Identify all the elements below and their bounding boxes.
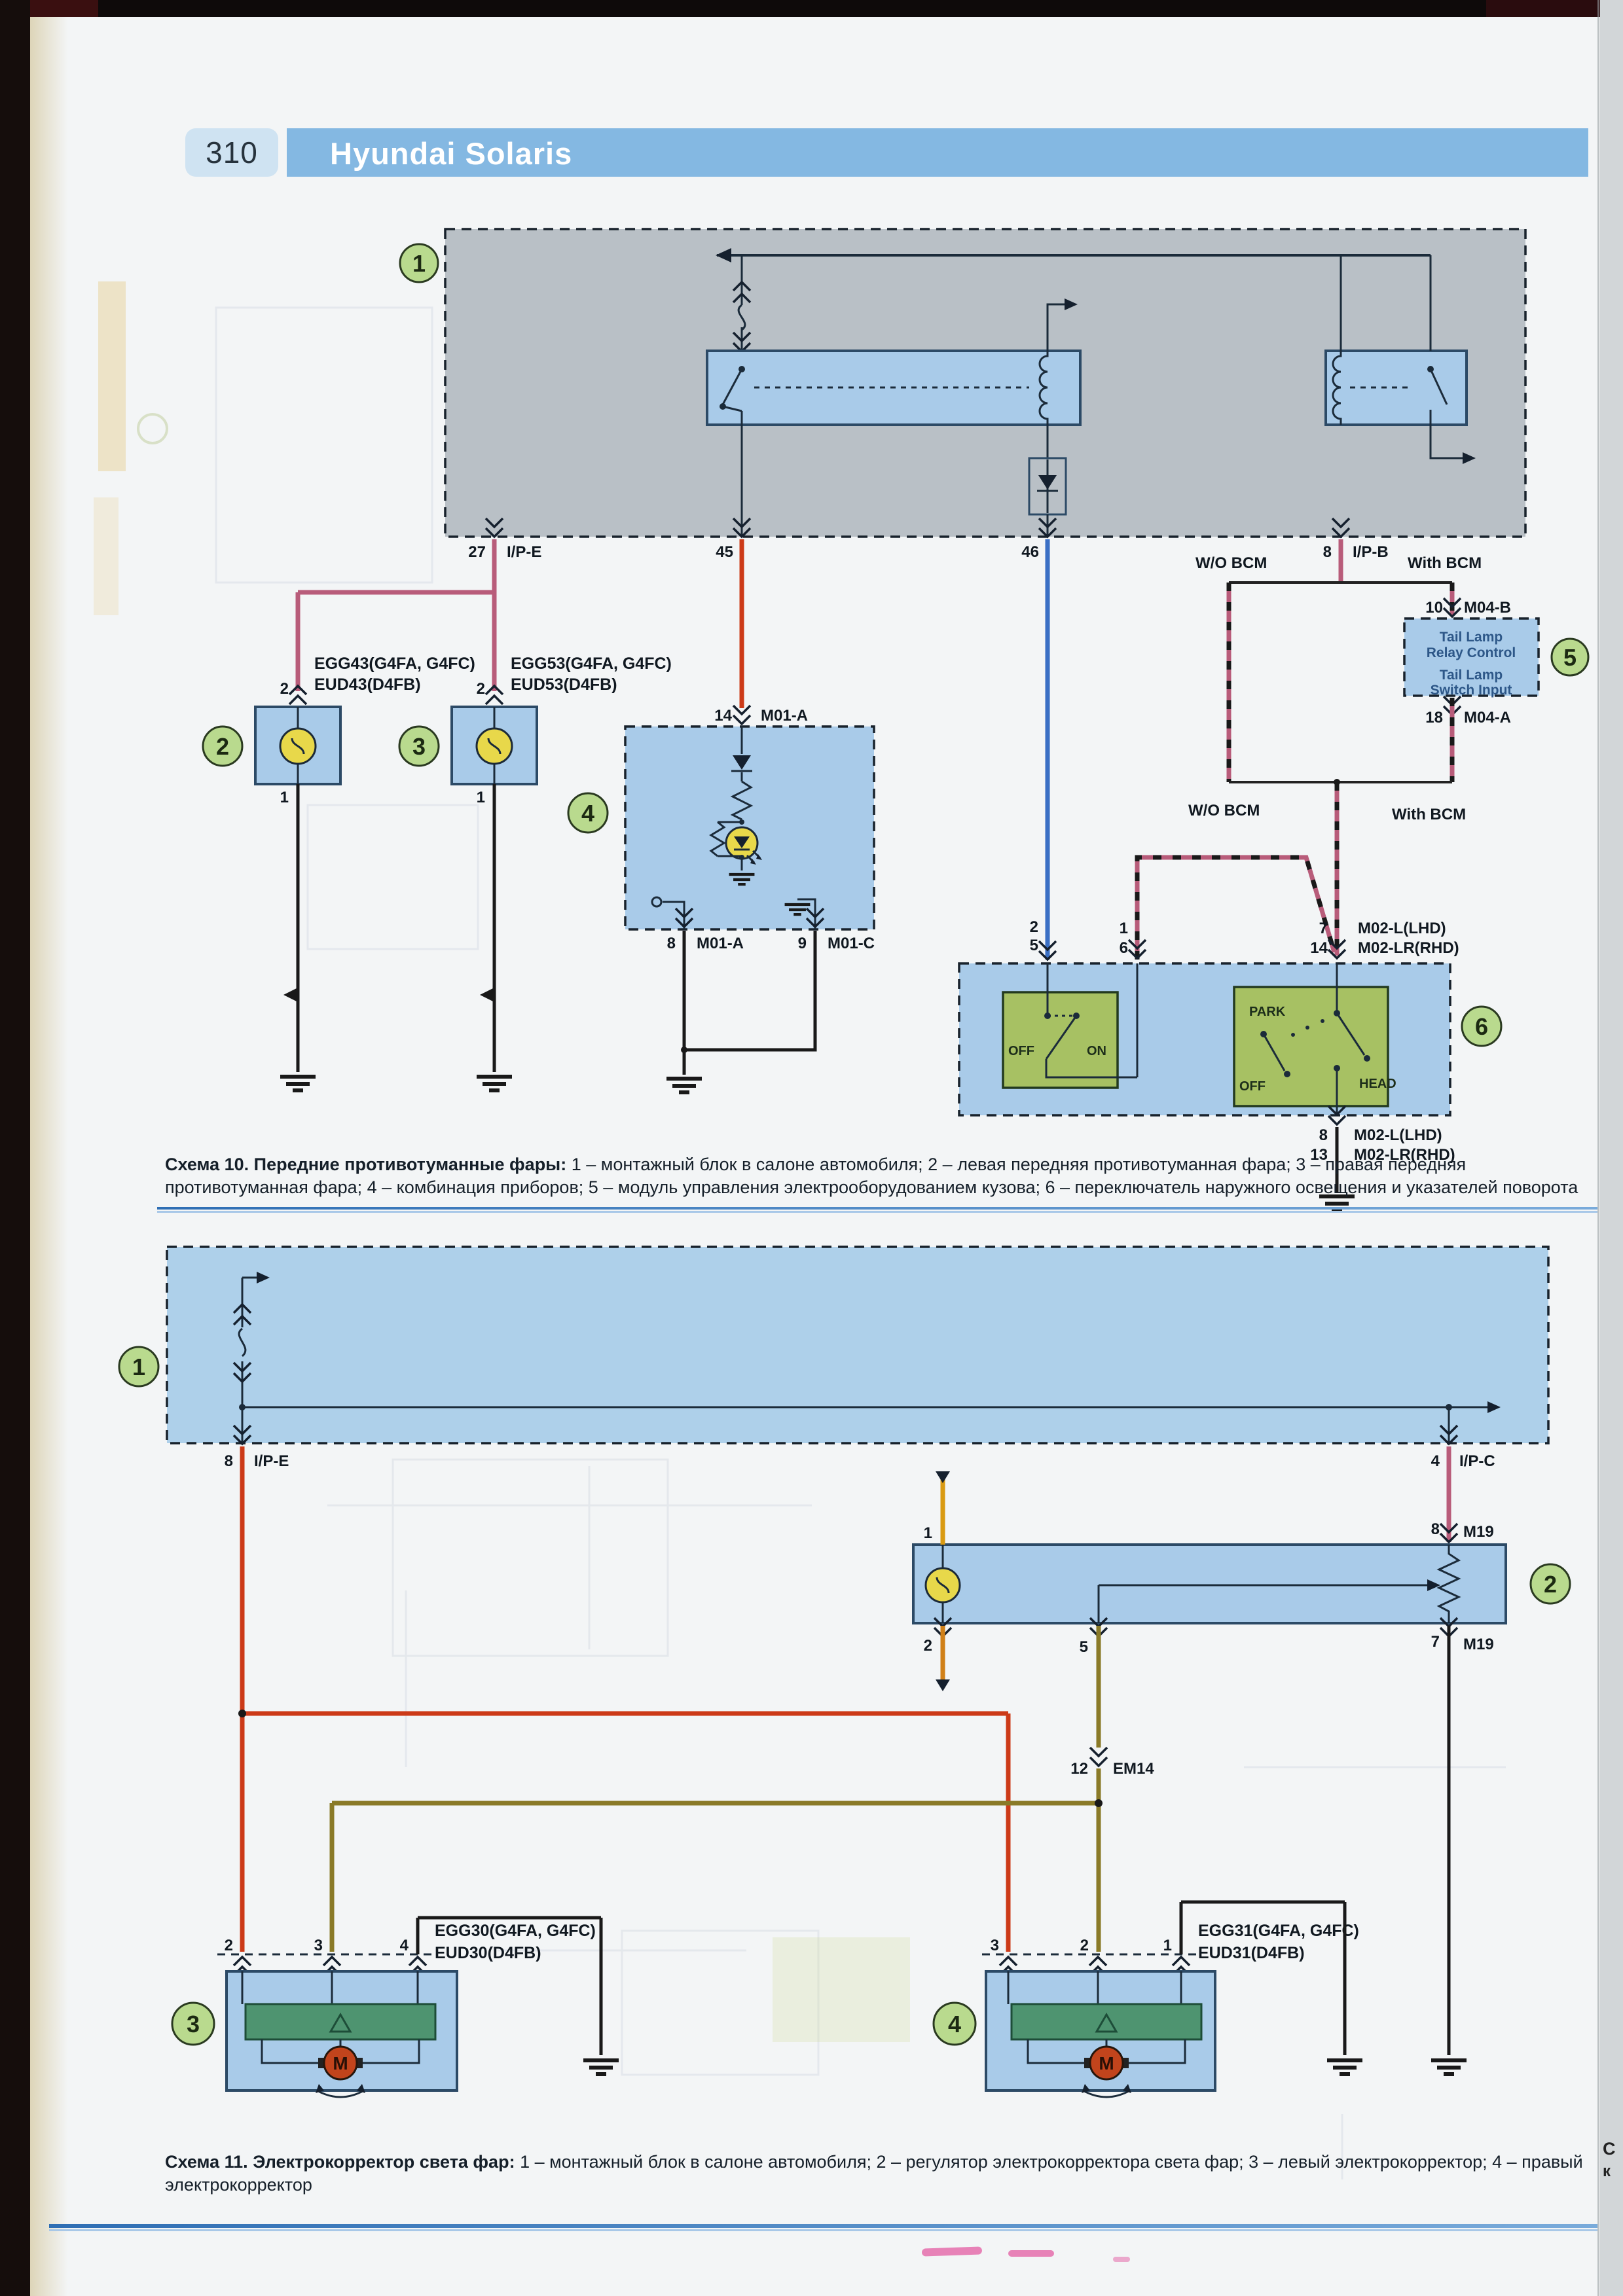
scan-bleedthrough: [216, 308, 1506, 2179]
bcm-function: Relay Control: [1427, 645, 1516, 660]
connector-label: M04-B: [1464, 599, 1511, 617]
pin-arrow: [733, 706, 750, 724]
pin-label: 2: [1030, 918, 1038, 936]
pin-label: 8: [667, 935, 676, 952]
wiring-diagrams: 27 I/P-E 45 46 8 I/P-B EGG43(G4FA, G4FC)…: [0, 0, 1623, 2296]
separator-line: [157, 1211, 1597, 1213]
pin-label: 2: [280, 680, 289, 698]
pin-label: 27: [468, 543, 486, 561]
pin-label: 7: [1431, 1633, 1440, 1651]
callout-number: 1: [412, 250, 426, 277]
connector-label: EGG31(G4FA, G4FC): [1198, 1922, 1359, 1940]
connector-label: I/P-B: [1353, 543, 1389, 561]
ground-icon: [477, 1077, 512, 1090]
callout-number: 2: [1544, 1571, 1557, 1598]
pin-label: 1: [477, 789, 485, 806]
pin-label: 8: [1323, 543, 1332, 561]
pin-label: 1: [924, 1524, 932, 1542]
switch-position: PARK: [1249, 1005, 1286, 1019]
pin-label: 1: [1163, 1937, 1172, 1954]
motor-letter: M: [1099, 2053, 1114, 2073]
variant-label: With BCM: [1392, 806, 1466, 823]
callout-number: 1: [132, 1354, 145, 1380]
connector-label: I/P-C: [1459, 1452, 1495, 1470]
arrow-down-icon: [936, 1679, 950, 1691]
pin-arrow: [1090, 1748, 1107, 1766]
fog-lamp-left: [255, 707, 340, 784]
ground-icon: [1431, 2060, 1467, 2074]
ground-icon: [1327, 2060, 1362, 2074]
scan-bleedthrough: [773, 1937, 910, 2042]
pin-label: 8: [1319, 1126, 1328, 1144]
instrument-cluster: [625, 726, 874, 929]
pin-label: 14: [1310, 939, 1328, 957]
connector-label: EM14: [1113, 1760, 1154, 1778]
pin-label: 10: [1425, 599, 1443, 617]
switch-position: OFF: [1239, 1079, 1266, 1094]
pin-label: 4: [1431, 1452, 1440, 1470]
connector-label: EGG53(G4FA, G4FC): [511, 655, 672, 673]
arrow-down-icon: [936, 1471, 950, 1483]
pin-label: 18: [1425, 709, 1443, 726]
connector-label: M01-A: [761, 707, 808, 725]
pin-label: 2: [1080, 1937, 1089, 1954]
scanned-page: 310 Hyundai Solaris: [0, 0, 1623, 2296]
callout-number: 5: [1563, 644, 1577, 671]
pin-label: 12: [1070, 1760, 1088, 1778]
connector-label: EUD31(D4FB): [1198, 1944, 1305, 1962]
switch-position: OFF: [1008, 1044, 1034, 1058]
callout-number: 2: [216, 733, 229, 760]
pin-label: 5: [1080, 1638, 1088, 1656]
caption-title: Схема 10. Передние противотуманные фары:: [165, 1155, 566, 1174]
connector-label: I/P-E: [254, 1452, 289, 1470]
pin-label: 8: [1431, 1520, 1440, 1538]
drive-bar: [1012, 2004, 1201, 2039]
corrector-right: M: [986, 1971, 1215, 2097]
wire-ground: [684, 931, 815, 1075]
ground-icon: [280, 1077, 316, 1090]
scan-artifact: [138, 414, 167, 443]
pin-label: 9: [798, 935, 807, 952]
bcm-function: Tail Lamp: [1440, 630, 1503, 645]
pin-label: 1: [1120, 920, 1128, 937]
pin-label: 3: [991, 1937, 999, 1954]
connector-label: M01-A: [697, 935, 744, 952]
fog-lamp-right: [452, 707, 537, 784]
body-control-module: Tail Lamp Relay Control Tail Lamp Switch…: [1404, 619, 1539, 698]
connector-label: M04-A: [1464, 709, 1511, 726]
light-switch-module: OFF ON PARK OFF HEAD: [959, 963, 1450, 1115]
pin-label: 46: [1021, 543, 1039, 561]
separator-line: [157, 1207, 1597, 1210]
pin-label: 3: [314, 1937, 323, 1954]
pin-label: 6: [1120, 939, 1128, 957]
pin-label: 2: [924, 1637, 932, 1655]
drive-bar: [246, 2004, 435, 2039]
fog-relay: [707, 351, 1080, 425]
caption-schema-10: Схема 10. Передние противотуманные фары:…: [165, 1153, 1599, 1199]
pin-label: 5: [1030, 937, 1038, 954]
scan-smudge: [1113, 2257, 1130, 2262]
pin-label: 1: [280, 789, 289, 806]
callout-number: 4: [948, 2011, 961, 2037]
connector-label: M02-LR(RHD): [1358, 939, 1459, 957]
junction-box-cabin: [167, 1247, 1548, 1443]
arrow-left-icon: [480, 988, 494, 1002]
leveling-regulator: 1: [913, 1471, 1506, 1623]
arrow-left-icon: [283, 988, 298, 1002]
ground-icon: [583, 2060, 619, 2074]
facing-page-text-fragment: С: [1603, 2139, 1616, 2159]
connector-label: M02-L(LHD): [1358, 920, 1446, 937]
pin-label: 7: [1319, 920, 1328, 937]
bcm-function: Switch Input: [1431, 683, 1512, 698]
pin-label: 2: [225, 1937, 233, 1954]
motor-letter: M: [333, 2053, 348, 2073]
ground-icon: [666, 1079, 702, 1092]
pin-label: 14: [714, 707, 732, 725]
switch-position: HEAD: [1359, 1077, 1396, 1091]
connector-label: M02-L(LHD): [1354, 1126, 1442, 1144]
pin-label: 2: [477, 680, 485, 698]
variant-label: With BCM: [1408, 554, 1482, 572]
connector-label: M19: [1463, 1523, 1494, 1541]
connector-label: EUD43(D4FB): [314, 675, 421, 694]
caption-title: Схема 11. Электрокорректор света фар:: [165, 2152, 515, 2172]
separator-line: [49, 2224, 1597, 2228]
callout-number: 3: [187, 2011, 200, 2037]
pin-label: 45: [716, 543, 733, 561]
callout-number: 6: [1475, 1013, 1488, 1040]
callout-number: 3: [412, 733, 426, 760]
connector-label: I/P-E: [507, 543, 541, 561]
connector-label: EGG43(G4FA, G4FC): [314, 655, 475, 673]
variant-label: W/O BCM: [1188, 802, 1260, 819]
connector-label: M01-C: [828, 935, 875, 952]
connector-label: EUD30(D4FB): [435, 1944, 541, 1962]
pin-label: 8: [225, 1452, 233, 1470]
corrector-left: M: [227, 1971, 457, 2097]
switch-position: ON: [1087, 1044, 1106, 1058]
connector-label: EUD53(D4FB): [511, 675, 617, 694]
facing-page-text-fragment: к: [1603, 2162, 1611, 2181]
pin-label: 4: [400, 1937, 409, 1954]
variant-label: W/O BCM: [1195, 554, 1267, 572]
connector-label: EGG30(G4FA, G4FC): [435, 1922, 596, 1940]
separator-line: [49, 2229, 1597, 2231]
connector-label: M19: [1463, 1636, 1494, 1653]
wire-corrector-feed: [242, 1446, 1008, 1952]
callout-number: 4: [581, 800, 594, 827]
bcm-function: Tail Lamp: [1440, 668, 1503, 683]
caption-schema-11: Схема 11. Электрокорректор света фар: 1 …: [165, 2151, 1599, 2197]
scan-smudge: [1008, 2250, 1054, 2257]
diagram-10: 27 I/P-E 45 46 8 I/P-B EGG43(G4FA, G4FC)…: [203, 229, 1588, 1210]
